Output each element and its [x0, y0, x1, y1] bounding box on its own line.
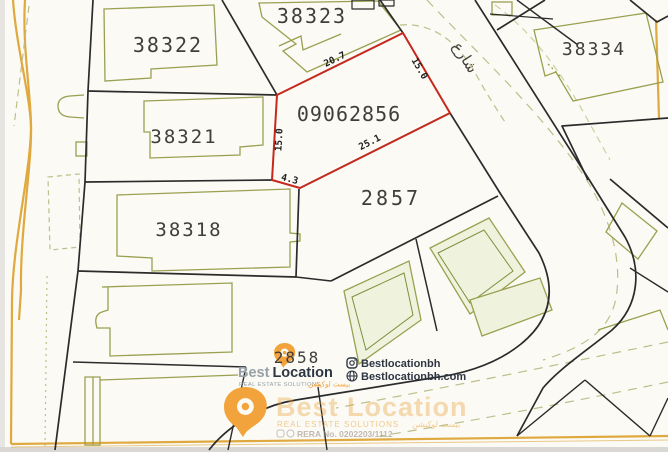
plot-label-38323: 38323 — [277, 4, 347, 28]
scan-edge-left — [0, 0, 5, 452]
watermark-tagline-en: REAL ESTATE SOLUTIONS — [277, 420, 399, 429]
instagram-dot — [354, 359, 356, 361]
logo-instagram-handle: Bestlocationbh — [361, 358, 441, 370]
watermark-rera-number: RERA No. 0202203/1112 — [297, 429, 393, 439]
plot-label-2857: 2857 — [361, 186, 421, 210]
plot-label-38334: 38334 — [562, 39, 626, 60]
logo-brand-text: BestLocation — [238, 365, 333, 381]
scan-edge-bottom — [0, 447, 668, 452]
logo-brand-first: Best — [238, 365, 270, 381]
plot-label-09062856: 09062856 — [297, 102, 401, 126]
watermark-tagline-ar: بيست لوكيشن — [412, 420, 460, 429]
logo-website: Bestlocationbh.com — [361, 371, 466, 383]
cadastral-map-canvas: شارع 20.7 15.0 25.1 15.0 4.3 Best Locati… — [0, 0, 668, 452]
plot-label-38321: 38321 — [150, 126, 217, 148]
dimension-left: 15.0 — [273, 128, 285, 152]
pin-dot — [242, 403, 249, 410]
logo-tagline-ar: بيست لوكيشن — [308, 381, 350, 389]
watermark-brand-text: Best Location — [276, 392, 468, 422]
plot-label-38322: 38322 — [133, 33, 203, 57]
cadastral-map-page: شارع 20.7 15.0 25.1 15.0 4.3 Best Locati… — [0, 0, 668, 452]
plot-label-38318: 38318 — [155, 219, 222, 241]
logo-brand-second: Location — [272, 365, 332, 381]
